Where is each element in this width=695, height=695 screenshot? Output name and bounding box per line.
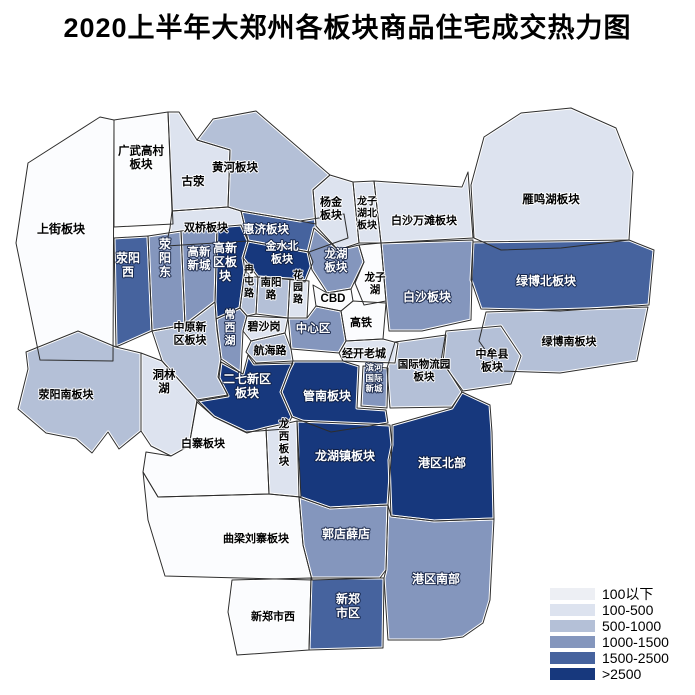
legend-swatch <box>550 588 595 600</box>
map-region-label: 荥阳南板块 <box>39 387 95 401</box>
map-region-label: 花园路 <box>293 269 304 306</box>
map-region-label: 中心区 <box>296 321 331 335</box>
legend-item: >2500 <box>550 668 669 680</box>
map-region-label: 滨河国际新城 <box>365 362 383 393</box>
legend-label: 100-500 <box>602 604 653 616</box>
infographic-stage: 2020上半年大郑州各板块商品住宅成交热力图 上街板块广武高村板块古荥黄河板块双… <box>0 0 695 695</box>
legend-item: 100-500 <box>550 604 669 616</box>
legend-item: 100以下 <box>550 588 669 600</box>
map-region-label: 古荥 <box>182 174 205 188</box>
legend-swatch <box>550 652 595 664</box>
map-region-label: 龙子湖北板块 <box>356 195 378 232</box>
map-region-label: 航海路 <box>254 343 288 357</box>
legend-swatch <box>550 636 595 648</box>
map-region-label: 经开老城 <box>342 346 386 360</box>
legend-label: 100以下 <box>602 588 653 600</box>
map-region-label: 杨金板块 <box>320 194 343 221</box>
map-region-label: 龙西板块 <box>278 417 290 468</box>
map-region-label: 荥阳东 <box>159 236 171 279</box>
legend-swatch <box>550 604 595 616</box>
map-region-label: 白寨板块 <box>181 436 226 450</box>
map-region-label: 新郑市区 <box>336 591 360 620</box>
map-region-label: 常西湖 <box>225 307 236 347</box>
map-region-label: 惠济板块 <box>243 222 289 236</box>
legend-label: 1000-1500 <box>602 636 669 648</box>
map-region-label: 雁鸣湖板块 <box>522 192 580 206</box>
map-region <box>297 421 392 508</box>
legend-item: 500-1000 <box>550 620 669 632</box>
map-region-label: 管南板块 <box>303 388 352 403</box>
map-region-label: 中原新区板块 <box>174 319 208 346</box>
map-region <box>381 240 473 331</box>
map-region-label: 白沙万滩板块 <box>391 213 458 227</box>
map-region-label: 新郑市西 <box>251 609 295 623</box>
legend-label: 500-1000 <box>602 620 661 632</box>
legend-label: >2500 <box>602 668 641 680</box>
legend-label: 1500-2500 <box>602 652 669 664</box>
map-region-label: 冉屯路 <box>244 263 255 300</box>
map-region-label: 绿博北板块 <box>516 273 577 288</box>
legend-item: 1500-2500 <box>550 652 669 664</box>
map-region-label: 龙湖镇板块 <box>315 448 376 463</box>
map-region-label: 曲梁刘寨板块 <box>223 531 290 545</box>
map-region-label: 郭店薛店 <box>322 526 370 541</box>
map-region-label: 高新新城 <box>188 244 211 272</box>
map-region-label: 港区南部 <box>412 571 460 586</box>
map-region <box>16 117 114 361</box>
map-region-label: 港区北部 <box>418 455 466 470</box>
legend-swatch <box>550 668 595 680</box>
map-region-label: 绿博南板块 <box>542 334 598 348</box>
map-region-label: CBD <box>321 293 346 305</box>
map-region-label: 双桥板块 <box>184 220 229 234</box>
map-region-label: 龙湖板块 <box>324 246 348 274</box>
map-region-label: 黄河板块 <box>212 160 258 174</box>
map-region-label: 上街板块 <box>37 221 86 236</box>
map-region-label: 白沙板块 <box>403 289 452 304</box>
legend: 100以下100-500500-10001000-15001500-2500>2… <box>550 588 669 680</box>
legend-swatch <box>550 620 595 632</box>
legend-item: 1000-1500 <box>550 636 669 648</box>
map-region-label: 高铁 <box>350 315 372 329</box>
map-region <box>374 172 473 243</box>
map-region-label: 碧沙岗 <box>247 319 281 333</box>
